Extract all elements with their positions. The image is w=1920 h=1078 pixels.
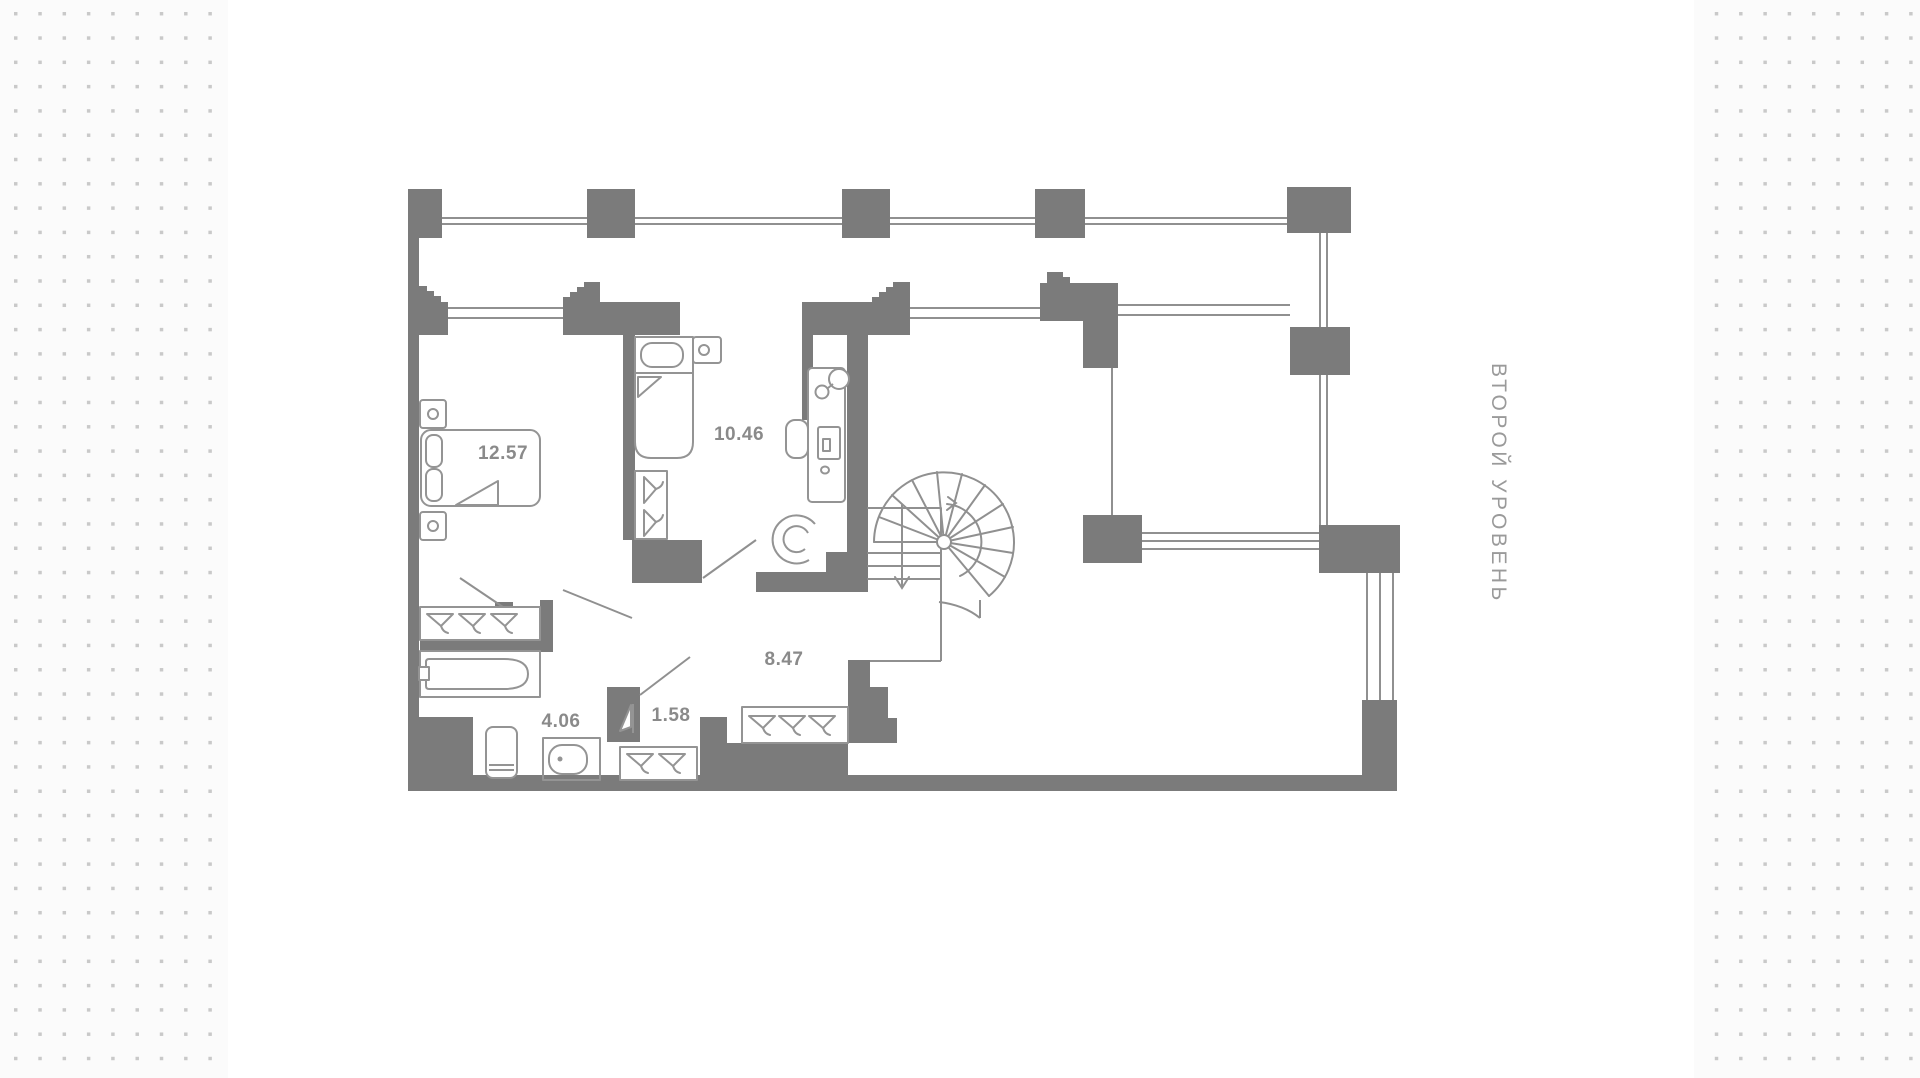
wall-stub [540,600,553,652]
door-swing [563,590,632,618]
door-swing [460,578,503,607]
column [408,189,442,238]
column [1290,327,1350,375]
wall-band [727,743,848,783]
double-bed [421,430,540,506]
single-bed [635,337,693,458]
nightstand [693,337,721,363]
wall-chunk [700,717,727,783]
pilaster [408,302,448,335]
down-arrow-icon [895,505,909,588]
floor-plan: 12.57 10.46 8.47 4.06 1.58 [0,0,1920,1078]
nightstand [420,400,446,428]
bathtub [419,651,540,697]
closet-two-hangers [620,747,697,780]
pillow [426,469,442,501]
column [1083,515,1142,563]
room-area-label-wardrobe: 1.58 [652,705,691,726]
understair-step [888,718,897,743]
window-line [1320,233,1327,525]
room-area-label-bedroom: 12.57 [478,443,528,464]
column [1287,187,1351,233]
room-area-label-hall: 8.47 [765,649,804,670]
closet-side-hangers [635,471,667,539]
wall-cabinet-stair [847,335,868,592]
wall-chunk-sw [408,717,473,777]
column [587,189,635,238]
nightstand [420,512,446,540]
room-area-label-bathroom: 4.06 [542,711,581,732]
column [1362,700,1397,776]
toilet [543,738,600,780]
desk-chair [786,420,808,458]
wall-chunk [632,540,702,583]
wall-bedroom-cabinet [623,335,635,540]
door-swing [703,540,756,578]
plant [816,386,829,399]
walls-group [408,187,1400,791]
wall-chunk [607,687,640,742]
faucet [419,667,429,680]
level-title: ВТОРОЙ УРОВЕНЬ [1486,363,1510,603]
bottom-wall [408,775,1397,791]
spiral-hub [937,535,951,549]
pillow [426,435,442,467]
corner-column [1319,525,1400,573]
understair-step [848,660,870,743]
pilaster-steps [419,286,441,302]
screenshot-stage: 12.57 10.46 8.47 4.06 1.58 ВТОРОЙ УРОВЕН… [0,0,1920,1078]
window-line [1367,573,1393,700]
pilaster-steps [872,282,910,302]
understair-step [870,687,888,743]
window-line [1142,533,1319,549]
corner-wall-ext [1083,321,1118,368]
armchair [773,515,815,563]
wall-hall-band [756,572,847,592]
pilaster-steps [1047,272,1070,283]
mouse [821,467,829,474]
pilaster-steps [563,282,600,302]
pillow [641,343,683,367]
desk [808,368,849,502]
closet-three-hangers [742,707,848,743]
washing-machine [486,727,517,778]
column [842,189,890,238]
wall-hall-step [826,552,847,572]
corner-wall [1040,283,1118,321]
pilaster [563,302,680,335]
terrace-door [939,600,980,618]
wardrobe [420,607,540,640]
pilaster [802,302,910,335]
room-area-label-cabinet: 10.46 [714,424,764,445]
door-swing [640,657,690,695]
column [1035,189,1085,238]
